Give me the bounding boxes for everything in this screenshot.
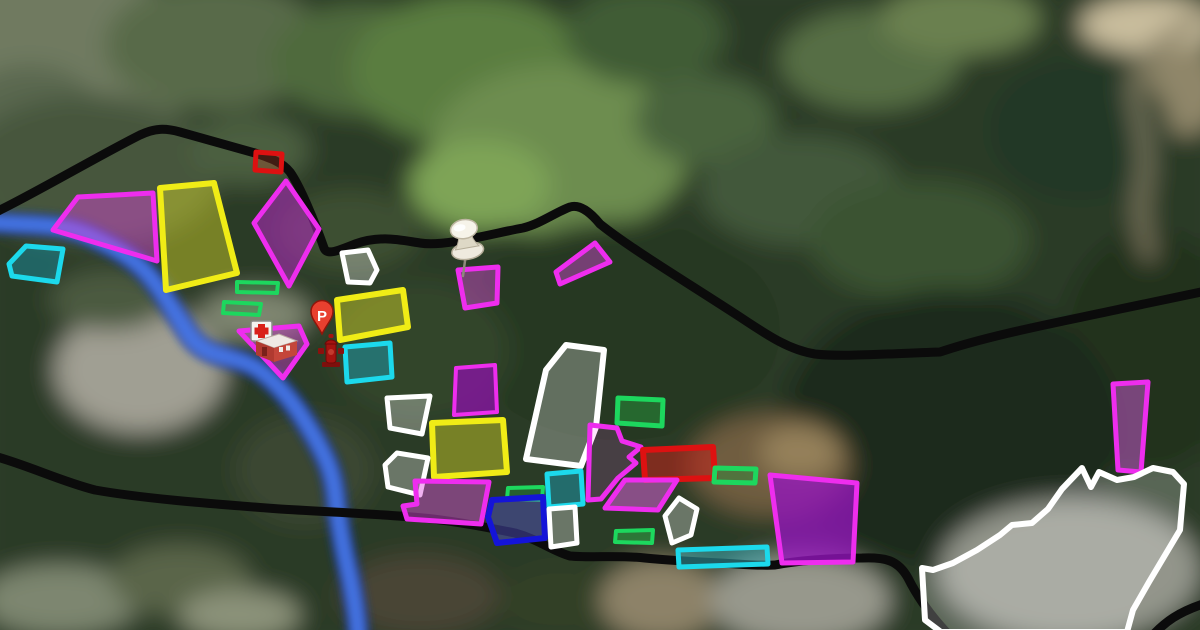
zone-cyan-long-south[interactable] [678, 547, 768, 567]
zone-white-small-b[interactable] [387, 396, 430, 434]
zone-green-east-b[interactable] [714, 468, 756, 483]
zone-purple-east-large[interactable] [770, 475, 857, 563]
zone-green-strip-2[interactable] [223, 302, 261, 315]
zone-white-small-d[interactable] [549, 507, 577, 547]
parking-pin-label: P [317, 308, 327, 325]
zone-green-east-a[interactable] [617, 398, 663, 426]
zone-green-strip-1[interactable] [237, 282, 278, 293]
zone-cyan-mid-b[interactable] [547, 471, 583, 507]
zone-magenta-notch-south[interactable] [403, 481, 489, 524]
satellite-map[interactable]: P [0, 0, 1200, 630]
zone-yellow-mid-b[interactable] [432, 420, 507, 477]
zone-purple-mid[interactable] [454, 365, 497, 415]
zone-magenta-tall-east[interactable] [1113, 382, 1148, 472]
zone-white-small-a[interactable] [342, 250, 377, 283]
zone-red-filled-east[interactable] [643, 447, 715, 480]
zone-red-outline-north[interactable] [255, 152, 282, 172]
zone-cyan-mid-a[interactable] [345, 343, 392, 382]
zone-green-filled-south[interactable] [615, 530, 653, 543]
zone-blue-zone[interactable] [488, 497, 545, 543]
map-canvas: P [0, 0, 1200, 630]
